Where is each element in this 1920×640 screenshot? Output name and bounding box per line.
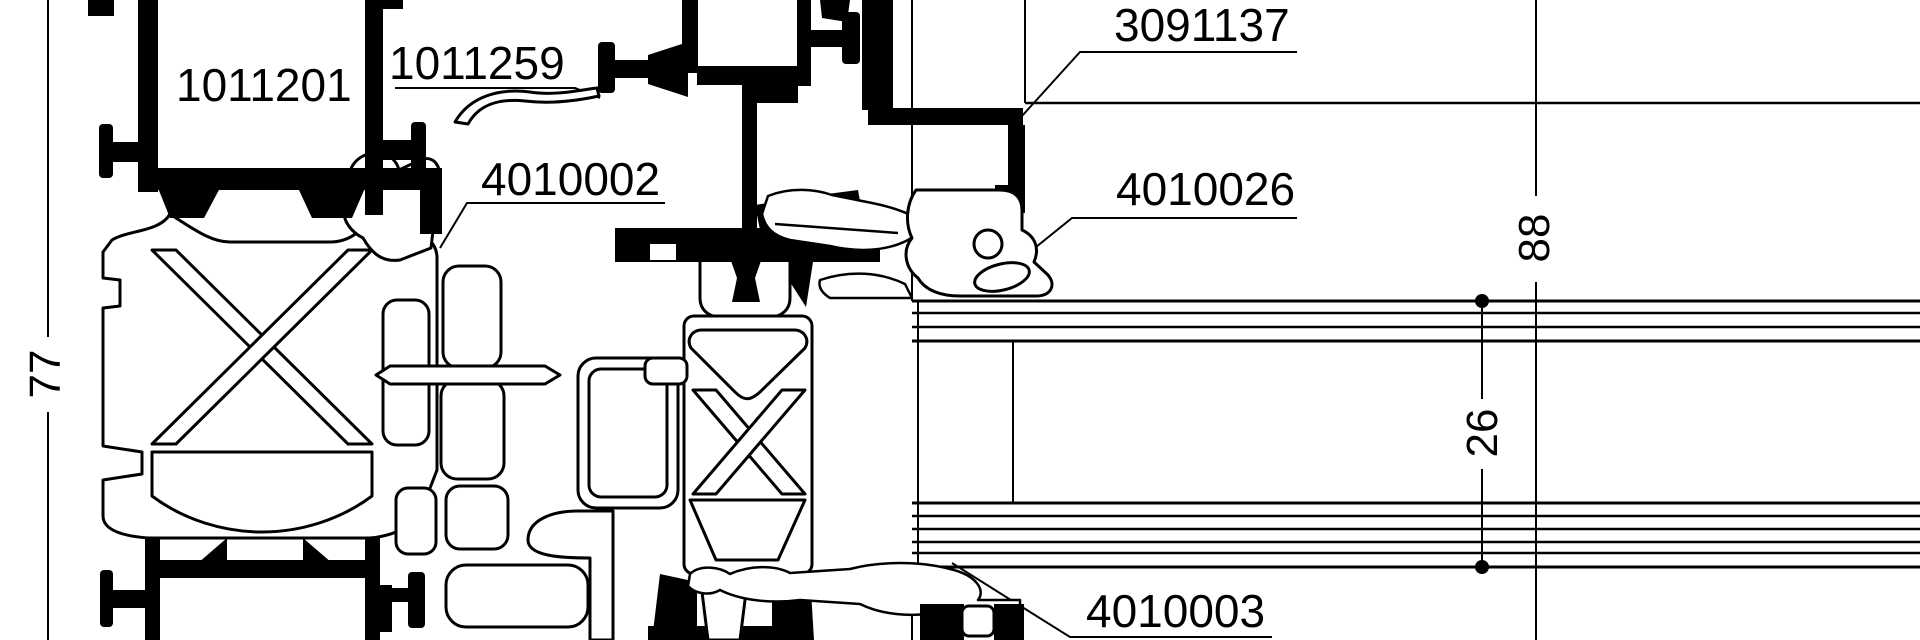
part-label-glazing-gasket: 4010026 — [1116, 166, 1295, 212]
glazing-gasket-4010026 — [906, 190, 1052, 296]
part-label-glazing-clamp: 3091137 — [1114, 2, 1290, 48]
part-label-insulating-strip: 4010002 — [481, 156, 660, 202]
dimension-88-text: 88 — [1513, 214, 1557, 263]
part-label-sash-profile: 1011259 — [389, 40, 565, 86]
part-label-bottom-gasket: 4010003 — [1086, 588, 1265, 634]
frame-thermal-break — [103, 214, 437, 554]
label-leader-lines — [395, 52, 1297, 637]
dimension-26-text: 26 — [1461, 409, 1505, 458]
dimension-77-text: 77 — [24, 350, 68, 399]
glazing-lines — [912, 0, 1920, 640]
part-label-frame-profile: 1011201 — [176, 62, 352, 108]
drawing-page: 1011201 1011259 4010002 3091137 4010026 … — [0, 0, 1920, 640]
